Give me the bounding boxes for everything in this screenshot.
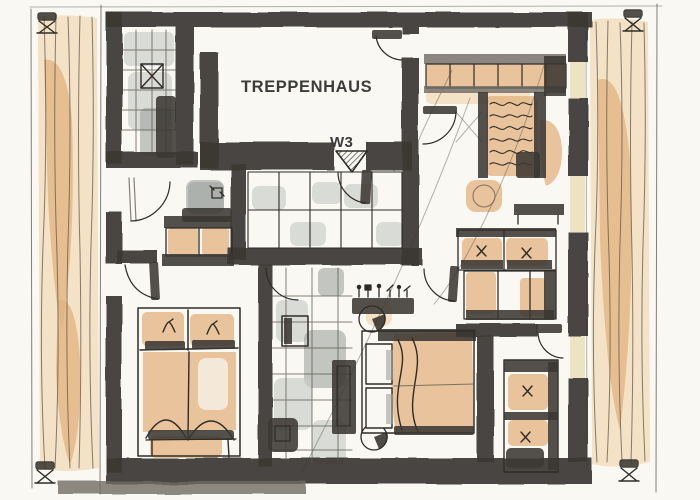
floor-plan-sketch: TREPPENHAUS W3 [0, 0, 700, 500]
wall-corridor-bottom [228, 248, 422, 265]
wall-bottom-shadow [58, 481, 306, 494]
wall-left-upper [106, 12, 122, 164]
unit-label: W3 [330, 134, 353, 151]
wall-stair-horizontal-left [200, 142, 334, 170]
staircase-label: TREPPENHAUS [241, 78, 372, 96]
wall-right-1 [568, 12, 588, 62]
wall-hall-shelf [117, 250, 157, 263]
wall-corridor-right-top [402, 27, 419, 34]
shower-door-icon [332, 360, 356, 434]
wall-bath-tl-bottom [106, 152, 198, 168]
wall-right-3 [568, 232, 588, 336]
wall-bath-tl-right [176, 27, 194, 165]
side-table [516, 152, 540, 178]
bath-tl-fixture [156, 96, 176, 158]
wall-right-2 [568, 98, 588, 176]
wall-corridor-right [402, 58, 419, 266]
kitchen-tall-unit [544, 56, 566, 96]
sink-icon [268, 418, 298, 452]
wall-top [106, 12, 592, 27]
wall-corridor-left [231, 164, 246, 260]
wall-left-lower [106, 296, 122, 472]
floor-plan-canvas: TREPPENHAUS W3 [0, 0, 700, 500]
wall-right-4 [568, 378, 588, 462]
wall-bunk-left [477, 336, 494, 462]
